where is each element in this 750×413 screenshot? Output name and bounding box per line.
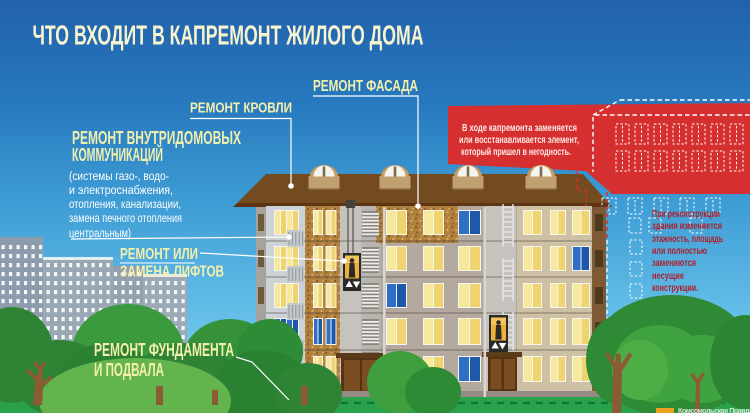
svg-text:РЕМОНТ ФУНДАМЕНТА: РЕМОНТ ФУНДАМЕНТА <box>94 340 234 360</box>
svg-text:КОММУНИКАЦИЙ: КОММУНИКАЦИЙ <box>72 144 163 165</box>
svg-text:заменяются: заменяются <box>652 258 696 269</box>
svg-text:(системы газо-, водо-: (системы газо-, водо- <box>69 169 169 183</box>
svg-text:здания изменяется: здания изменяется <box>652 221 722 232</box>
svg-text:ЧТО ВХОДИТ В КАПРЕМОНТ ЖИЛОГО: ЧТО ВХОДИТ В КАПРЕМОНТ ЖИЛОГО ДОМА <box>33 20 424 51</box>
svg-text:РЕМОНТ ИЛИ: РЕМОНТ ИЛИ <box>120 246 198 263</box>
svg-text:несущие: несущие <box>652 271 684 282</box>
svg-text:и электроснабжения,: и электроснабжения, <box>69 183 173 197</box>
svg-text:ЗАМЕНА ЛИФТОВ: ЗАМЕНА ЛИФТОВ <box>120 264 224 281</box>
svg-text:И ПОДВАЛА: И ПОДВАЛА <box>94 360 164 380</box>
svg-text:центральным): центральным) <box>69 226 131 240</box>
svg-text:который пришел в негодность.: который пришел в негодность. <box>461 146 571 158</box>
svg-text:РЕМОНТ ФАСАДА: РЕМОНТ ФАСАДА <box>313 78 418 95</box>
svg-text:этажность, площадь: этажность, площадь <box>652 234 723 245</box>
svg-text:При реконструкции: При реконструкции <box>652 209 720 220</box>
svg-text:В ходе капремонта заменяется: В ходе капремонта заменяется <box>462 122 577 134</box>
svg-text:конструкции.: конструкции. <box>652 283 698 294</box>
svg-text:или восстанавливается элемент,: или восстанавливается элемент, <box>459 134 579 146</box>
svg-text:замена печного отопления: замена печного отопления <box>69 211 182 225</box>
svg-text:Комсомольская Правда: Комсомольская Правда <box>678 408 750 413</box>
svg-text:отопления, канализации,: отопления, канализации, <box>69 197 181 211</box>
svg-text:или полностью: или полностью <box>652 246 707 257</box>
svg-text:РЕМОНТ КРОВЛИ: РЕМОНТ КРОВЛИ <box>190 101 292 117</box>
